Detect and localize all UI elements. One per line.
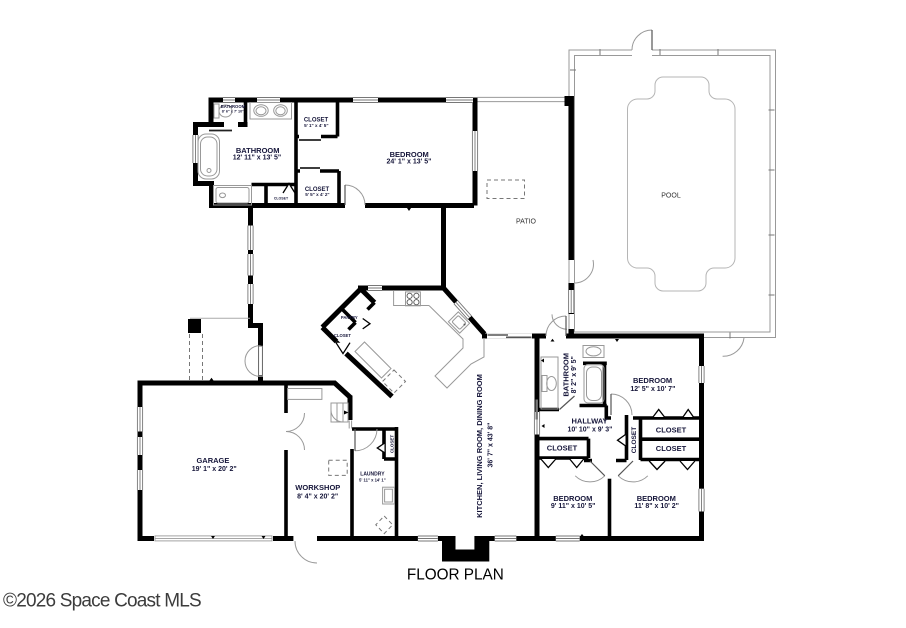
svg-text:WORKSHOP: WORKSHOP (295, 483, 340, 492)
svg-text:CLOSET: CLOSET (547, 444, 578, 453)
svg-text:CLOSET: CLOSET (656, 425, 687, 434)
svg-text:HALLWAY: HALLWAY (572, 416, 608, 425)
svg-text:11' 8" x 10' 2": 11' 8" x 10' 2" (634, 503, 679, 510)
svg-text:PATIO: PATIO (516, 218, 537, 225)
svg-text:BEDROOM: BEDROOM (633, 376, 672, 385)
svg-text:12' 11" x 13' 5": 12' 11" x 13' 5" (233, 155, 282, 162)
svg-text:BEDROOM: BEDROOM (553, 494, 592, 503)
svg-text:BATHROOM: BATHROOM (221, 104, 246, 109)
svg-text:CLOSET: CLOSET (334, 333, 351, 338)
svg-text:POOL: POOL (661, 193, 681, 200)
svg-text:10' 10" x 9' 3": 10' 10" x 9' 3" (568, 427, 613, 434)
svg-text:19' 1" x 20' 2": 19' 1" x 20' 2" (192, 466, 237, 473)
svg-text:24' 1" x 13' 5": 24' 1" x 13' 5" (387, 159, 432, 166)
svg-text:GARAGE: GARAGE (196, 456, 229, 465)
svg-text:8' 4" x 20' 2": 8' 4" x 20' 2" (297, 493, 338, 500)
svg-text:12' 5" x 10' 7": 12' 5" x 10' 7" (630, 386, 675, 393)
svg-text:8' 2" x 9' 5": 8' 2" x 9' 5" (571, 356, 578, 393)
svg-text:BATHROOM: BATHROOM (562, 353, 571, 397)
svg-text:36' 7" x 43' 8": 36' 7" x 43' 8" (488, 422, 495, 467)
svg-text:8' 6" x 7' 10": 8' 6" x 7' 10" (222, 109, 244, 113)
svg-text:BEDROOM: BEDROOM (637, 494, 676, 503)
svg-text:5' 5" x 4' 2": 5' 5" x 4' 2" (305, 192, 329, 197)
svg-text:9' 11" x 10' 5": 9' 11" x 10' 5" (551, 503, 596, 510)
svg-text:KITCHEN, LIVING ROOM, DINING R: KITCHEN, LIVING ROOM, DINING ROOM (475, 374, 484, 518)
svg-text:CLOSET: CLOSET (631, 427, 638, 453)
svg-text:PANTRY: PANTRY (341, 315, 358, 320)
svg-text:5' 1" x 4' 5": 5' 1" x 4' 5" (304, 123, 328, 128)
svg-text:CLOSET: CLOSET (656, 444, 687, 453)
svg-text:5' 11" x 14' 1": 5' 11" x 14' 1" (359, 478, 386, 483)
svg-text:CLOSET: CLOSET (389, 435, 394, 454)
svg-text:CLOSET: CLOSET (274, 197, 289, 201)
svg-text:FLOOR PLAN: FLOOR PLAN (407, 567, 504, 584)
svg-text:©2026 Space Coast MLS: ©2026 Space Coast MLS (3, 591, 201, 612)
